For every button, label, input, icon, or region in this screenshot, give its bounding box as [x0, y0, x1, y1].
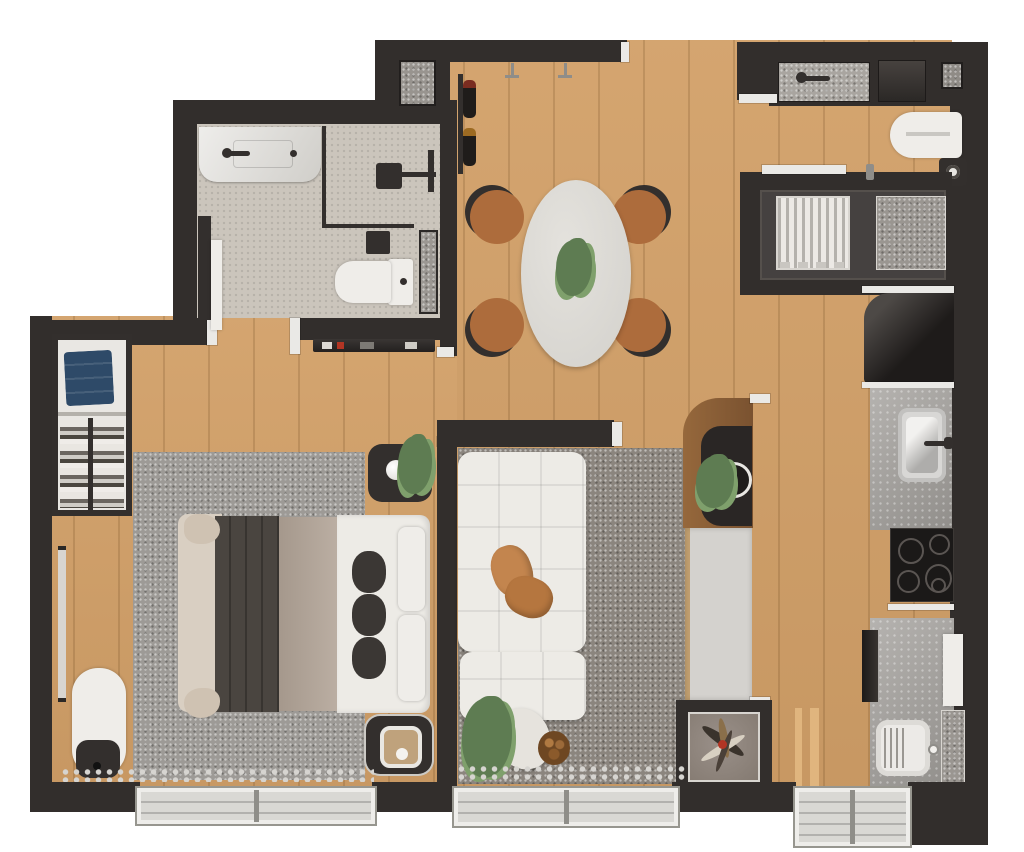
wine-bottle-2	[463, 128, 476, 166]
living-window-mullion	[564, 790, 569, 824]
shower-valve	[428, 150, 434, 192]
wall-sconce-1	[505, 63, 519, 78]
toilet-shelf-box	[366, 231, 390, 254]
living-window	[452, 786, 680, 828]
kitchen-faucet-base	[944, 437, 953, 449]
full-length-mirror	[58, 546, 66, 702]
tv-panel-cap-top	[750, 394, 770, 403]
nightstand-tray-sphere	[396, 748, 408, 760]
toilet-bowl	[335, 261, 391, 303]
bathroom-wall-bottom-right	[293, 318, 440, 340]
kitchen-balcony-door	[793, 786, 912, 848]
dining-chair-nw	[470, 190, 524, 244]
ac-condenser-feet	[780, 262, 846, 268]
laundry-faucet-knob	[796, 72, 807, 83]
dining-wall-end-cap	[621, 42, 629, 62]
folded-clothes-blue	[64, 350, 115, 406]
cooktop-burner-1	[898, 538, 924, 564]
technical-gravel-mat	[876, 196, 946, 270]
wall-dining-living-cap	[612, 422, 622, 446]
shelf-item-red	[337, 342, 344, 349]
bed-cushion-2	[352, 594, 386, 636]
bed-runner-beige	[279, 517, 337, 711]
fridge-counter-edge-top	[862, 286, 954, 293]
bed-pillow-top	[398, 527, 425, 611]
bed-cushion-3	[352, 637, 386, 679]
bedroom-window	[135, 786, 377, 826]
ventilation-shaft	[399, 60, 436, 106]
washing-machine	[878, 60, 926, 102]
tv-panel	[752, 402, 768, 698]
laundry-threshold	[739, 94, 777, 103]
technical-sliding-door	[762, 165, 846, 174]
wall-bottom-1	[30, 782, 140, 812]
curtain-bedroom	[60, 768, 374, 782]
bed-cushion-1	[352, 551, 386, 593]
bedroom-door-jamb-top	[437, 347, 454, 357]
cooktop-burner-2	[929, 534, 950, 555]
wall-dining-living	[437, 420, 614, 447]
vanity-faucet-knob	[222, 148, 232, 158]
bathroom-door-recess	[198, 216, 211, 320]
kitchen-white-panel	[943, 634, 963, 706]
washboard-faucet-knob	[928, 744, 939, 755]
bathroom-niche-mat	[419, 230, 438, 314]
shelf-item-grey	[360, 342, 374, 349]
wall-bottom-2	[372, 782, 456, 812]
cooktop-burner-3	[897, 570, 920, 593]
shower-head	[376, 163, 402, 189]
bathroom-door-jamb-right	[290, 318, 300, 354]
shower-glass-horizontal	[322, 224, 414, 228]
curtain-living	[456, 765, 686, 781]
laundry-corner-shaft	[941, 62, 963, 89]
shower-glass-vertical	[322, 126, 326, 228]
counter-edge-below-cooktop	[888, 604, 954, 610]
bathroom-wall-right	[440, 100, 457, 356]
laundry-corner-column	[737, 42, 769, 100]
ac-condenser-unit	[776, 196, 850, 270]
partition-bedroom-living	[437, 445, 457, 788]
wall-bottom-4	[908, 782, 988, 845]
washboard-ribs	[884, 728, 906, 768]
towel-ladder	[795, 708, 819, 788]
appliance-front-dark	[862, 630, 878, 702]
refrigerator	[864, 293, 954, 383]
media-console	[685, 528, 752, 700]
nightstand-tray	[380, 726, 422, 768]
wall-left-outer	[30, 316, 52, 812]
floor-plan	[0, 0, 1024, 852]
wardrobe-shelf-divider	[58, 412, 126, 416]
ironing-board-bar	[906, 132, 950, 136]
wall-sconce-2	[558, 63, 572, 78]
bed-throw-pillow-top	[184, 514, 220, 544]
technical-door-handle	[866, 164, 874, 180]
bathroom-wall-left	[173, 100, 197, 345]
dried-arrangement-accent	[718, 740, 727, 749]
bed-duvet-dark	[215, 516, 279, 712]
toilet-flush-dot	[400, 278, 407, 285]
shelf-item-light	[405, 342, 417, 349]
bathroom-wall-bottom-left	[190, 318, 207, 345]
bed-pillow-bottom	[398, 615, 425, 701]
log-basket	[538, 731, 570, 765]
wardrobe-rail	[88, 418, 93, 510]
laundry-sink	[778, 62, 870, 102]
bathroom-door-leaf	[211, 240, 222, 330]
dining-chair-sw	[470, 298, 524, 352]
vanity-drain-dot	[290, 150, 297, 157]
shelf-item-white	[322, 342, 332, 349]
bedroom-window-mullion	[254, 790, 259, 822]
cooktop-burner-4-inner	[931, 578, 946, 593]
kitchen-door-mullion	[850, 790, 855, 844]
wine-bottle-1	[463, 80, 476, 118]
